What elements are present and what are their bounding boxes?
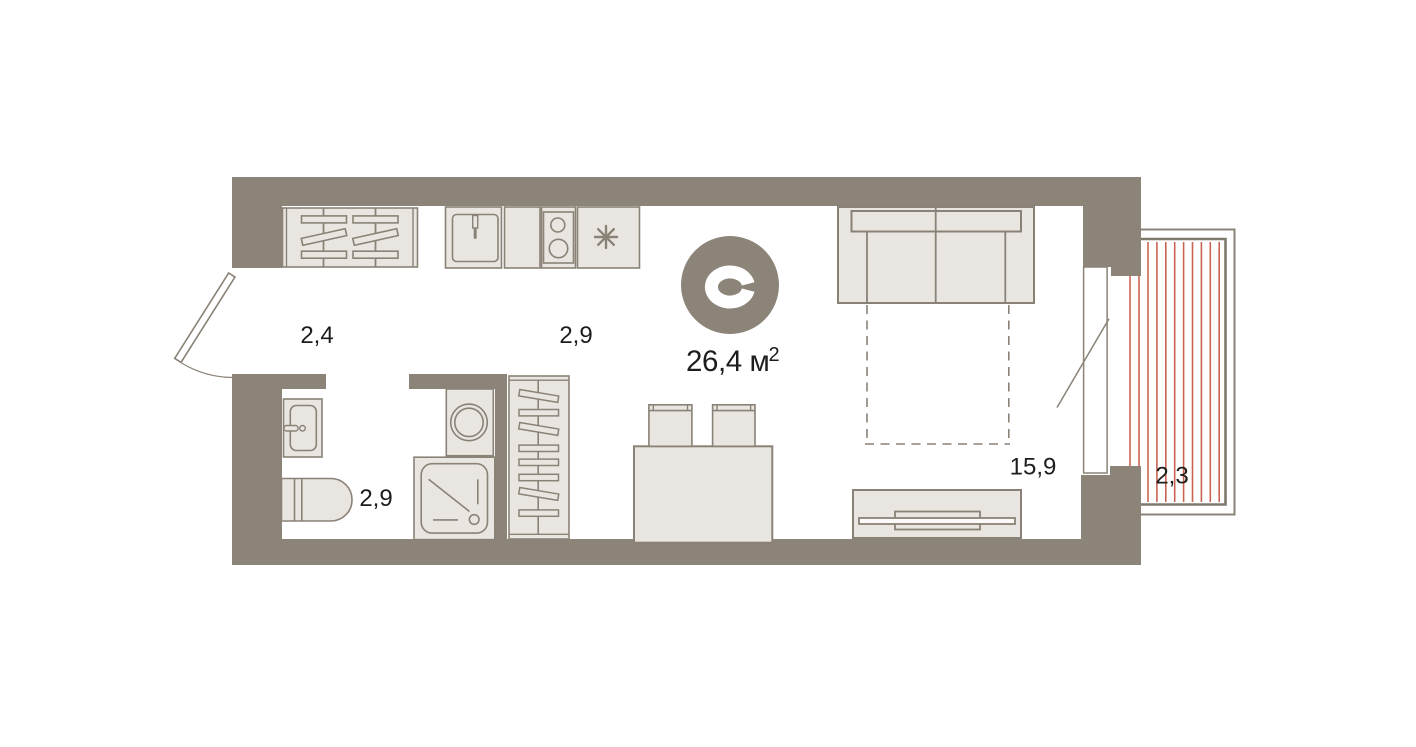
svg-text:2: 2 — [769, 344, 780, 366]
svg-text:2,3: 2,3 — [1155, 463, 1188, 490]
svg-text:15,9: 15,9 — [1010, 454, 1057, 481]
svg-text:2,9: 2,9 — [559, 322, 592, 349]
svg-text:2,4: 2,4 — [300, 322, 333, 349]
svg-text:26,4: 26,4 — [686, 345, 742, 378]
svg-text:м: м — [750, 345, 770, 378]
svg-text:2,9: 2,9 — [359, 485, 392, 512]
